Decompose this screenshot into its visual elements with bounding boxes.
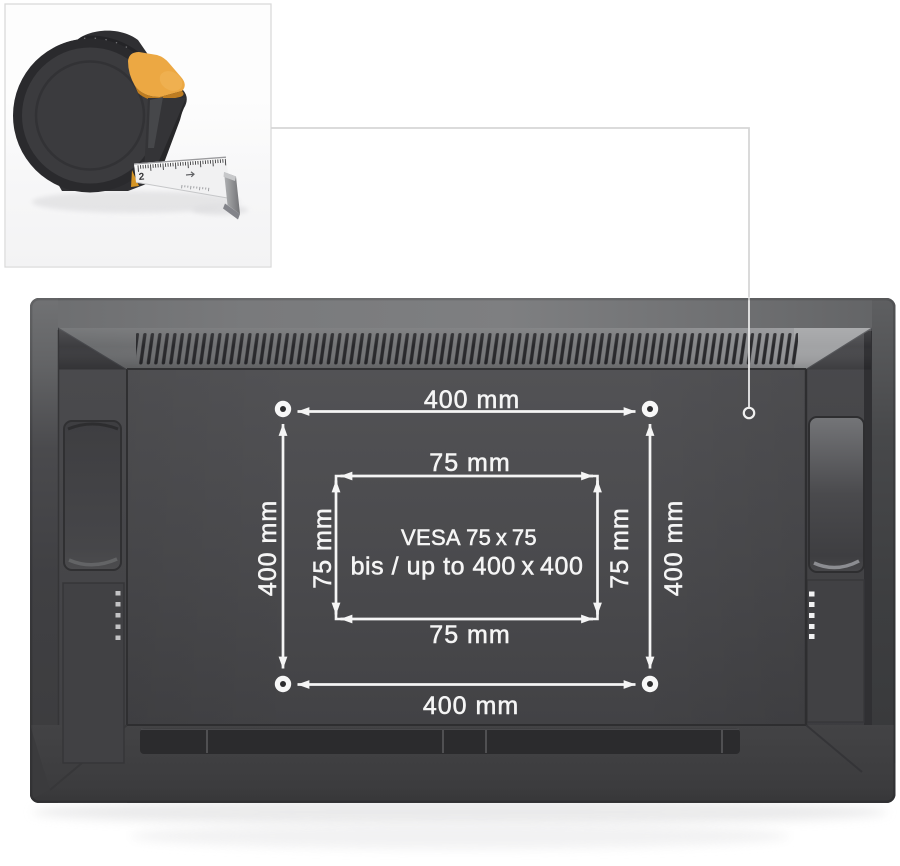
svg-text:75 mm: 75 mm: [606, 507, 634, 588]
svg-text:400 mm: 400 mm: [424, 386, 520, 414]
svg-text:400 mm: 400 mm: [254, 500, 282, 596]
svg-text:400 mm: 400 mm: [660, 500, 688, 596]
svg-text:VESA 75 x 75: VESA 75 x 75: [401, 525, 537, 550]
svg-text:bis / up to 400 x 400: bis / up to 400 x 400: [351, 553, 584, 581]
svg-text:75 mm: 75 mm: [429, 621, 510, 649]
svg-text:75 mm: 75 mm: [429, 449, 510, 477]
svg-text:400 mm: 400 mm: [423, 692, 519, 720]
svg-text:75 mm: 75 mm: [309, 507, 337, 588]
